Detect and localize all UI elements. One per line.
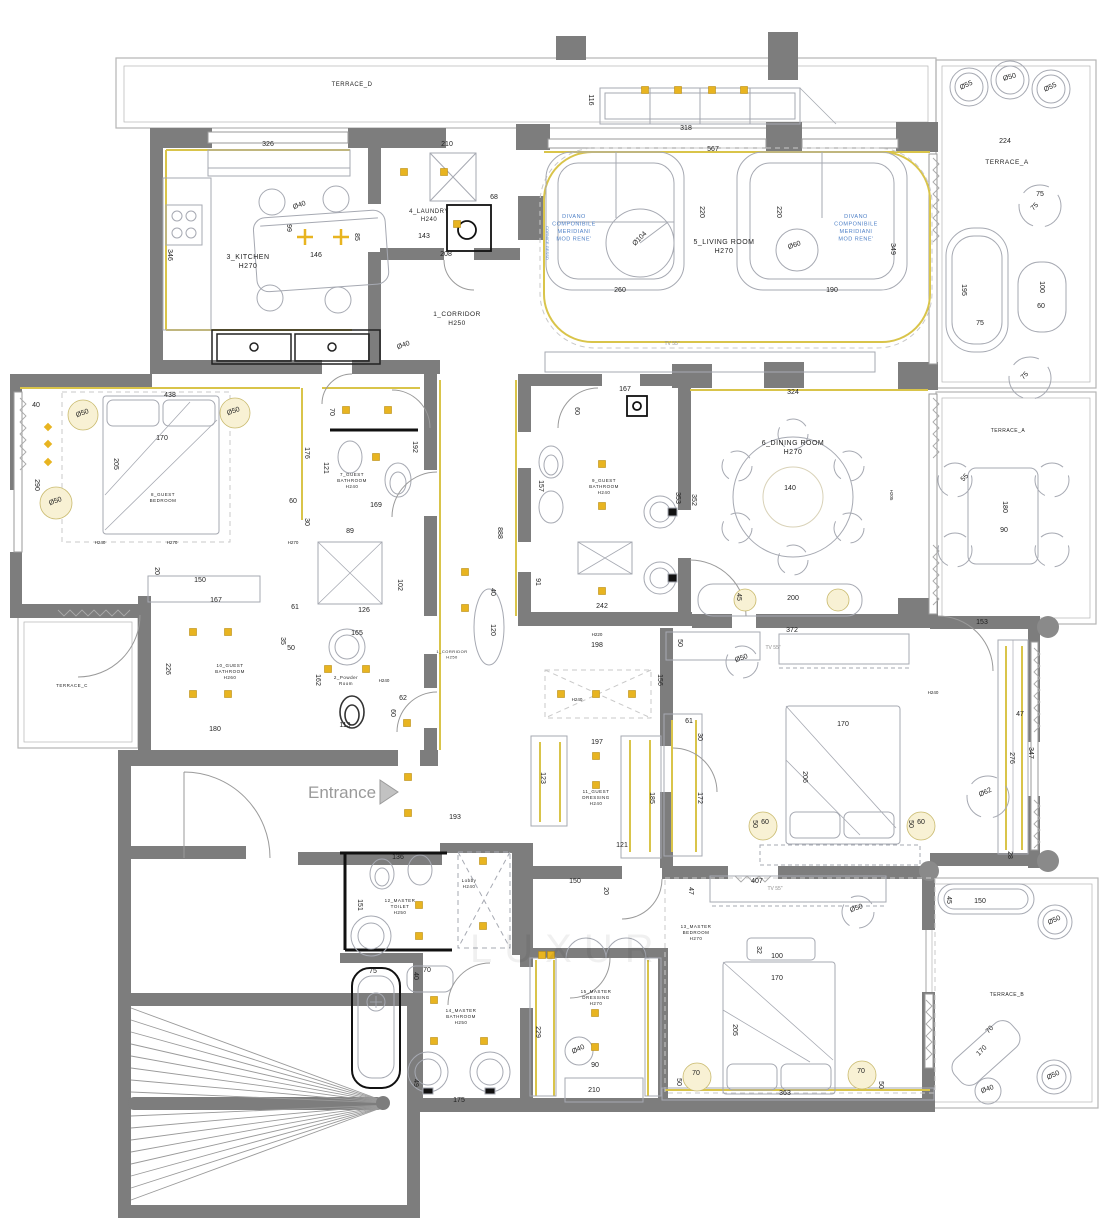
dim-label: 193 bbox=[449, 814, 461, 821]
dim-label: 172 bbox=[696, 792, 703, 804]
dim-label: Ø60 bbox=[787, 240, 802, 251]
dim-label: 242 bbox=[596, 603, 608, 610]
dim-label: 85 bbox=[353, 233, 360, 241]
dim-label: 167 bbox=[619, 386, 631, 393]
dim-label: H270 bbox=[167, 540, 178, 545]
wall-segment bbox=[518, 572, 531, 618]
dim-label: 156 bbox=[656, 674, 663, 686]
dim-label: 70 bbox=[857, 1068, 865, 1075]
room-label-master-bathroom-14: 14_MASTERBATHROOMH250 bbox=[446, 1008, 477, 1025]
dim-label: Ø62 bbox=[978, 787, 993, 799]
dim-label: 123 bbox=[539, 772, 546, 784]
dim-label: 100 bbox=[771, 953, 783, 960]
dim-label: 170 bbox=[975, 1044, 988, 1057]
dim-label: Ø40 bbox=[571, 1044, 586, 1056]
wall-segment bbox=[424, 654, 437, 688]
kitchen-sink-unit bbox=[212, 330, 380, 364]
stair-tread bbox=[131, 1008, 389, 1103]
wall-segment bbox=[118, 1205, 420, 1218]
dim-label: 35 bbox=[279, 637, 286, 645]
terrace-a-furniture bbox=[938, 61, 1070, 567]
dim-label: 75 bbox=[976, 320, 984, 327]
armchair bbox=[842, 896, 874, 928]
guest-bathroom7-fixtures bbox=[318, 430, 418, 604]
terrace-d-outline bbox=[116, 58, 936, 128]
laundry-fixtures bbox=[430, 153, 491, 251]
dim-label: 167 bbox=[210, 597, 222, 604]
room-label-terrace-d: TERRACE_D bbox=[332, 82, 373, 88]
column bbox=[1037, 850, 1059, 872]
wall-segment bbox=[778, 866, 926, 879]
wall-segment bbox=[896, 122, 938, 152]
dim-label: 50 bbox=[676, 639, 683, 647]
dim-label: 326 bbox=[262, 141, 274, 148]
window bbox=[208, 132, 348, 143]
wall-segment bbox=[424, 516, 437, 616]
dim-label: 229 bbox=[534, 1026, 541, 1038]
watermark-text: LUXUR bbox=[470, 927, 666, 971]
spotlight-icon bbox=[599, 461, 606, 468]
spotlight-icon bbox=[225, 691, 232, 698]
entrance-label: Entrance bbox=[308, 783, 376, 802]
dim-label: Ø40 bbox=[292, 200, 307, 211]
dim-label: 91 bbox=[534, 578, 541, 586]
room-label-master-dressing-15: 15_MASTERDRESSINGH270 bbox=[581, 989, 612, 1006]
dim-label: 205 bbox=[731, 1024, 738, 1036]
dim-label: H240 bbox=[928, 690, 939, 695]
hob bbox=[166, 205, 202, 245]
spotlight-diamond-icon bbox=[44, 458, 52, 466]
sofa-right bbox=[737, 152, 907, 290]
entrance-door-swing bbox=[184, 772, 270, 858]
dim-label: Ø50 bbox=[1047, 915, 1062, 927]
dim-label: 180 bbox=[1001, 501, 1008, 513]
dim-label: H240 bbox=[379, 678, 390, 683]
dim-label: 180 bbox=[209, 726, 221, 733]
dim-label: 50 bbox=[287, 645, 295, 652]
stair-newel bbox=[376, 1096, 390, 1110]
armchair bbox=[967, 776, 1009, 818]
dim-label: 50 bbox=[751, 820, 758, 828]
window bbox=[548, 139, 766, 148]
dim-label: 121 bbox=[322, 462, 329, 474]
spotlight-icon bbox=[642, 87, 649, 94]
spotlight-icon bbox=[373, 454, 380, 461]
room-label-kitchen: 3_KITCHENH270 bbox=[226, 254, 269, 270]
wall-segment bbox=[118, 846, 246, 859]
dim-label: 99 bbox=[285, 224, 292, 232]
wall-segment bbox=[678, 558, 691, 618]
dim-label: 140 bbox=[784, 485, 796, 492]
dim-label: 150 bbox=[194, 577, 206, 584]
dim-label: H240 bbox=[95, 540, 106, 545]
wall-segment bbox=[150, 146, 163, 372]
dim-label: 61 bbox=[291, 604, 299, 611]
spotlight-icon bbox=[481, 1038, 488, 1045]
window bbox=[1031, 642, 1038, 850]
wall-segment bbox=[530, 374, 602, 386]
guest-bathroom9-fixtures bbox=[539, 396, 677, 594]
side-table bbox=[776, 229, 818, 271]
dim-label: 372 bbox=[786, 627, 798, 634]
dim-label: 198 bbox=[591, 642, 603, 649]
room-label-guest-bathroom-10: 10_GUESTBATHROOMH260 bbox=[215, 663, 245, 680]
floor-plan-page: 326210681432089985Ø40146346Ø403181165672… bbox=[0, 0, 1106, 1218]
spotlight-icon bbox=[593, 782, 600, 789]
dim-label: 169 bbox=[370, 502, 382, 509]
wall-segment bbox=[516, 124, 550, 150]
dim-label: 347 bbox=[1027, 747, 1034, 759]
lamp-glow-icon bbox=[848, 1061, 876, 1089]
dim-label: 70 bbox=[985, 1025, 996, 1036]
spotlight-icon bbox=[431, 1038, 438, 1045]
dim-label: 62 bbox=[399, 695, 407, 702]
room-label-guest-bedroom-8: 8_GUESTBEDROOM bbox=[150, 492, 177, 503]
dim-label: 121 bbox=[616, 842, 628, 849]
column bbox=[1037, 616, 1059, 638]
room-label-corridor: 1_CORRIDORH250 bbox=[433, 311, 481, 327]
wall-segment bbox=[518, 468, 531, 542]
room-label-living-room: 5_LIVING ROOMH270 bbox=[694, 239, 755, 255]
dim-label: 146 bbox=[310, 252, 322, 259]
dim-label: 150 bbox=[569, 878, 581, 885]
spotlight-icon bbox=[592, 1010, 599, 1017]
dim-label: 157 bbox=[537, 480, 544, 492]
spotlight-icon bbox=[593, 753, 600, 760]
room-label-laundry: 4_LAUNDRYH240 bbox=[409, 209, 449, 223]
stool bbox=[259, 189, 285, 215]
wall-segment bbox=[150, 360, 322, 374]
spotlight-icon bbox=[363, 666, 370, 673]
stair-tread bbox=[131, 1105, 389, 1200]
dim-label: 90 bbox=[591, 1062, 599, 1069]
wall-segment bbox=[768, 32, 798, 80]
dim-label: 192 bbox=[411, 441, 418, 453]
dim-label: 32 bbox=[755, 946, 762, 954]
window bbox=[802, 139, 898, 148]
dim-label: Ø50 bbox=[849, 903, 864, 914]
dim-label: 102 bbox=[396, 579, 403, 591]
dim-label: Ø55 bbox=[1043, 82, 1058, 94]
stool bbox=[323, 186, 349, 212]
room-label-corridor-2: 1_CORRIDORH250 bbox=[436, 649, 467, 660]
dim-label: 197 bbox=[591, 739, 603, 746]
spotlight-icon bbox=[416, 902, 423, 909]
room-label-guest-bathroom-9: 9_GUESTBATHROOMH240 bbox=[589, 478, 619, 495]
wall-segment bbox=[930, 853, 1040, 866]
dim-label: 208 bbox=[440, 251, 452, 258]
dim-label: 190 bbox=[826, 287, 838, 294]
wall-segment bbox=[118, 993, 420, 1006]
light-cross-icon bbox=[333, 229, 349, 245]
kitchen-counters bbox=[163, 150, 350, 330]
dim-label: 100 bbox=[1038, 281, 1045, 293]
wall-segment bbox=[518, 374, 531, 432]
dim-label: 324 bbox=[787, 389, 799, 396]
dim-label: 60 bbox=[389, 709, 396, 717]
dim-label: 60 bbox=[1037, 303, 1045, 310]
dim-label: 170 bbox=[771, 975, 783, 982]
dim-label: 162 bbox=[314, 674, 321, 686]
dim-label: 75 bbox=[1020, 371, 1031, 382]
stair-tread bbox=[131, 1056, 389, 1103]
dim-label: 290 bbox=[33, 479, 40, 491]
window bbox=[14, 392, 22, 552]
spotlight-icon bbox=[385, 407, 392, 414]
dim-label: 567 bbox=[707, 146, 719, 153]
wall-segment bbox=[150, 128, 212, 148]
dim-label: 170 bbox=[837, 721, 849, 728]
balcony-bench bbox=[600, 88, 836, 124]
spotlight-icon bbox=[462, 605, 469, 612]
dim-label: 206 bbox=[801, 771, 808, 783]
dim-label: 49 bbox=[412, 1079, 419, 1087]
dim-label: 60 bbox=[917, 819, 925, 826]
spotlight-icon bbox=[343, 407, 350, 414]
dim-label: 70 bbox=[692, 1070, 700, 1077]
dim-label: 89 bbox=[346, 528, 354, 535]
bathtub bbox=[352, 968, 400, 1088]
dim-label: Ø50 bbox=[1046, 1070, 1061, 1082]
room-label-terrace-b: TERRACE_B bbox=[990, 992, 1025, 998]
spotlight-icon bbox=[558, 691, 565, 698]
dim-label: 224 bbox=[999, 138, 1011, 145]
spotlight-icon bbox=[431, 997, 438, 1004]
stair-tread bbox=[131, 1105, 389, 1188]
dim-label: 226 bbox=[164, 663, 171, 675]
dim-label: 70 bbox=[423, 967, 431, 974]
dim-label: 276 bbox=[1008, 752, 1015, 764]
dim-label: 170 bbox=[156, 435, 168, 442]
dim-label: 75 bbox=[1030, 202, 1041, 213]
stair-tread bbox=[131, 1105, 389, 1152]
spotlight-icon bbox=[629, 691, 636, 698]
stair-tread bbox=[131, 1032, 389, 1103]
dim-label: 151 bbox=[356, 899, 363, 911]
wall-segment bbox=[764, 362, 804, 388]
dim-label: CORNICE GESSO bbox=[545, 226, 550, 260]
wall-segment bbox=[518, 612, 692, 626]
spotlight-icon bbox=[404, 720, 411, 727]
dim-label: 176 bbox=[303, 447, 310, 459]
spotlight-icon bbox=[454, 221, 461, 228]
light-cross-icon bbox=[297, 229, 313, 245]
room-label-guest-bathroom-7: 7_GUESTBATHROOMH240 bbox=[337, 472, 367, 489]
stair-tread bbox=[131, 1020, 389, 1103]
spotlight-icon bbox=[593, 691, 600, 698]
room-label-terrace-a-top: TERRACE_A bbox=[985, 159, 1029, 166]
spotlight-icon bbox=[416, 933, 423, 940]
room-label-terrace-a-mid: TERRACE_A bbox=[991, 428, 1026, 434]
dim-label: 20 bbox=[153, 567, 160, 575]
dim-label: 50 bbox=[675, 1078, 682, 1086]
dim-label: 45 bbox=[945, 896, 952, 904]
lamp-glow-icon bbox=[827, 589, 849, 611]
wall-segment bbox=[672, 364, 712, 388]
dim-label: 220 bbox=[698, 206, 705, 218]
floor-plan-drawing: 326210681432089985Ø40146346Ø403181165672… bbox=[0, 0, 1106, 1218]
tv-unit bbox=[779, 634, 909, 664]
dim-label: 205 bbox=[112, 458, 119, 470]
tv-wall-unit bbox=[710, 876, 886, 902]
spotlight-icon bbox=[592, 1044, 599, 1051]
dim-label: 185 bbox=[648, 792, 655, 804]
dim-label: 68 bbox=[490, 194, 498, 201]
dim-label: 153 bbox=[976, 619, 988, 626]
dim-label: TV 55" bbox=[664, 341, 679, 347]
spotlight-icon bbox=[441, 169, 448, 176]
dim-label: H270 bbox=[288, 540, 299, 545]
spotlight-icon bbox=[225, 629, 232, 636]
wall-segment bbox=[118, 764, 131, 860]
dim-label: Ø55 bbox=[959, 80, 974, 92]
spotlight-icon bbox=[405, 774, 412, 781]
spotlight-icon bbox=[675, 87, 682, 94]
dim-label: 438 bbox=[164, 392, 176, 399]
terrace-c-outline bbox=[18, 616, 138, 748]
spotlight-icon bbox=[709, 87, 716, 94]
wall-segment bbox=[420, 750, 438, 766]
wall-segment bbox=[118, 1004, 131, 1218]
dim-label: TV 55" bbox=[767, 886, 782, 892]
dim-label: H220 bbox=[592, 632, 603, 637]
stool bbox=[257, 285, 283, 311]
dim-label: 407 bbox=[751, 878, 763, 885]
wall-segment bbox=[520, 1008, 533, 1103]
dim-label: 116 bbox=[587, 94, 594, 105]
wall-segment bbox=[368, 146, 381, 204]
dim-label: 220 bbox=[775, 206, 782, 218]
spotlight-diamond-icon bbox=[44, 440, 52, 448]
spotlight-icon bbox=[190, 691, 197, 698]
dim-label: 20 bbox=[602, 887, 609, 895]
dim-label: 352 bbox=[690, 494, 697, 506]
dim-label: 113 bbox=[339, 722, 350, 729]
dim-label: 75 bbox=[369, 968, 377, 975]
dim-label: 210 bbox=[588, 1087, 600, 1094]
dim-label: 175 bbox=[453, 1097, 465, 1104]
dim-label: 165 bbox=[351, 630, 363, 637]
dim-label: 150 bbox=[974, 898, 986, 905]
dim-label: 210 bbox=[441, 141, 453, 148]
wall-segment bbox=[658, 948, 668, 1103]
spotlight-diamond-icon bbox=[44, 423, 52, 431]
wall-segment bbox=[118, 750, 398, 766]
dim-label: Ø50 bbox=[1002, 72, 1017, 82]
stool bbox=[325, 287, 351, 313]
room-label-sofa-note-right: DIVANOCOMPONIBILEMERIDIANIMOD RENE' bbox=[834, 214, 878, 243]
room-label-sofa-note-left: DIVANOCOMPONIBILEMERIDIANIMOD RENE' bbox=[552, 214, 596, 243]
wall-segment bbox=[474, 248, 520, 260]
wall-segment bbox=[424, 374, 437, 470]
dim-label: 60 bbox=[289, 498, 297, 505]
dim-label: 30 bbox=[696, 733, 703, 741]
dim-label: 50 bbox=[907, 820, 914, 828]
walls-layer bbox=[10, 32, 1040, 1218]
spotlight-icon bbox=[741, 87, 748, 94]
room-label-lobby: LobbyH240 bbox=[462, 878, 477, 889]
wall-segment bbox=[352, 360, 440, 374]
dim-label: 363 bbox=[779, 1090, 791, 1097]
wall-segment bbox=[340, 953, 422, 963]
guest-bedroom10-furniture bbox=[664, 632, 1028, 865]
room-label-master-toilet-12: 12_MASTERTOILETH250 bbox=[385, 898, 416, 915]
room-label-master-bedroom-13: 13_MASTERBEDROOMH270 bbox=[681, 924, 712, 941]
bench bbox=[760, 845, 920, 865]
spotlight-icon bbox=[405, 810, 412, 817]
dim-label: 61 bbox=[685, 718, 693, 725]
guest-bed bbox=[103, 396, 219, 534]
dim-label: 47 bbox=[1016, 711, 1024, 718]
dim-label: 349 bbox=[889, 243, 896, 255]
dim-label: 40 bbox=[32, 402, 40, 409]
entrance-arrow-icon bbox=[380, 780, 398, 804]
dim-label: Ø40 bbox=[980, 1084, 995, 1095]
dim-label: TV 55" bbox=[765, 645, 780, 651]
wall-segment bbox=[380, 248, 444, 260]
terrace-a-mid-outline bbox=[936, 392, 1096, 624]
dim-label: 120 bbox=[489, 624, 496, 636]
room-label-terrace-c: TERRACE_C bbox=[56, 683, 88, 688]
dim-label: 126 bbox=[358, 607, 370, 614]
dim-label: 45 bbox=[735, 593, 742, 601]
wall-segment bbox=[898, 362, 938, 390]
dim-label: Ø50 bbox=[734, 653, 749, 664]
lamp-glow-icon bbox=[683, 1063, 711, 1091]
spotlight-icon bbox=[599, 503, 606, 510]
wall-segment bbox=[368, 252, 381, 362]
dim-label: 260 bbox=[614, 287, 626, 294]
dim-label: 200 bbox=[787, 595, 799, 602]
spotlight-icon bbox=[462, 569, 469, 576]
dim-label: H240 bbox=[572, 697, 583, 702]
spotlight-icon bbox=[480, 858, 487, 865]
dim-label: 28 bbox=[1006, 851, 1013, 859]
corridor-oval bbox=[474, 589, 504, 665]
dim-label: 888 bbox=[496, 527, 503, 539]
dim-label: 318 bbox=[680, 125, 692, 132]
dim-label: 143 bbox=[418, 233, 430, 240]
dim-label: 353 bbox=[674, 492, 681, 504]
dim-label: H205 bbox=[889, 490, 894, 501]
wall-segment bbox=[10, 604, 148, 618]
spotlight-icon bbox=[190, 629, 197, 636]
dim-label: 40 bbox=[489, 588, 496, 596]
stair-tread bbox=[131, 1105, 389, 1176]
dim-label: 70 bbox=[328, 408, 335, 416]
room-label-guest-dressing-11: 11_GUESTDRESSINGH240 bbox=[582, 789, 610, 806]
dim-label: 50 bbox=[877, 1081, 884, 1089]
spotlight-icon bbox=[401, 169, 408, 176]
wall-segment bbox=[424, 728, 437, 752]
spotlight-icon bbox=[599, 588, 606, 595]
spotlight-icon bbox=[325, 666, 332, 673]
dim-label: 195 bbox=[960, 284, 967, 296]
wall-segment bbox=[118, 857, 131, 1007]
dim-label: 40 bbox=[412, 972, 419, 980]
dim-label: 90 bbox=[1000, 527, 1008, 534]
room-label-dining-room: 6_DINING ROOMH270 bbox=[762, 440, 825, 456]
dim-label: 75 bbox=[1036, 191, 1044, 198]
room-label-powder-room: 2_PowderRoom bbox=[334, 675, 358, 686]
dim-label: 60 bbox=[573, 407, 580, 415]
dim-label: 47 bbox=[687, 887, 694, 895]
wall-segment bbox=[10, 374, 152, 388]
wall-segment bbox=[556, 36, 586, 60]
dim-label: 60 bbox=[761, 819, 769, 826]
dim-label: 346 bbox=[166, 249, 173, 261]
wall-segment bbox=[348, 128, 446, 148]
